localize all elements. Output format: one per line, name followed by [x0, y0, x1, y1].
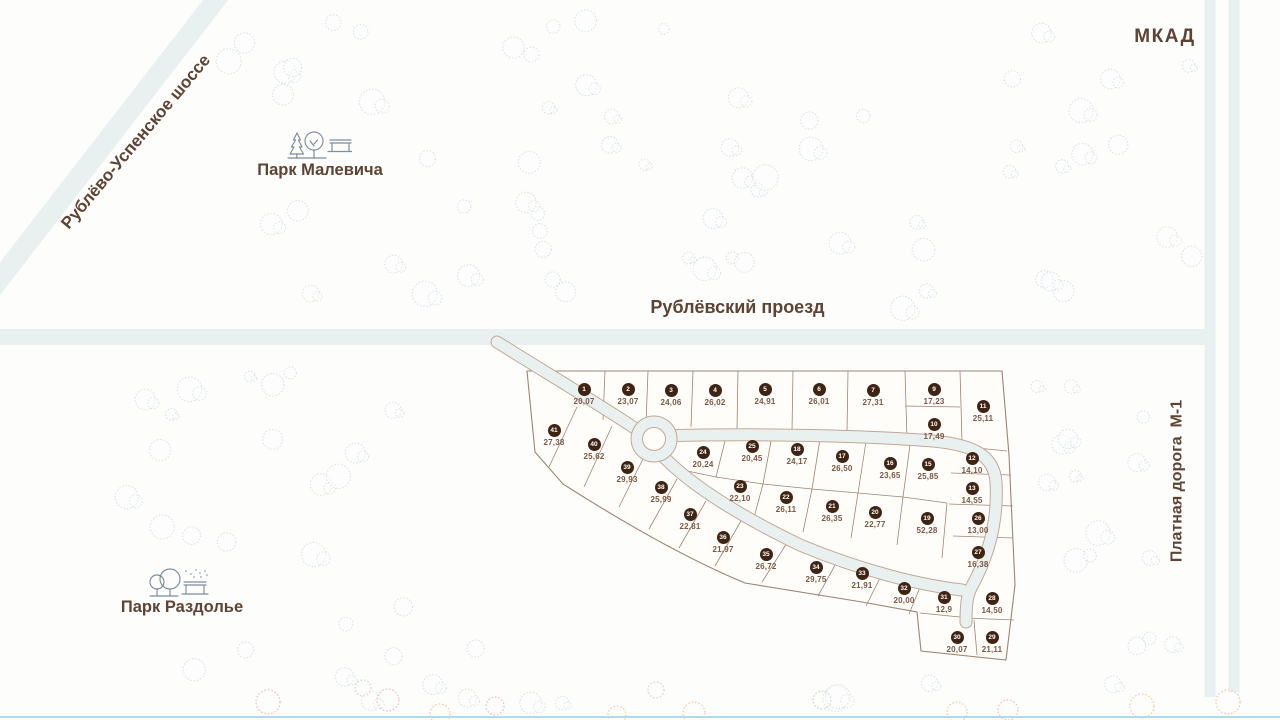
plot-area-label: 24,06 — [639, 398, 703, 407]
plot-marker: 4127,38 — [522, 424, 586, 447]
plot-badge[interactable]: 24 — [697, 446, 710, 459]
plot-marker: 2226,11 — [754, 491, 818, 514]
plot-marker: 2921,11 — [960, 631, 1024, 654]
plot-badge[interactable]: 6 — [813, 383, 826, 396]
plot-badge[interactable]: 10 — [928, 418, 941, 431]
plot-marker: 2716,38 — [946, 546, 1010, 569]
plot-area-label: 22,10 — [708, 494, 772, 503]
plot-badge[interactable]: 41 — [548, 424, 561, 437]
plot-badge[interactable]: 31 — [938, 591, 951, 604]
plot-badge[interactable]: 35 — [760, 548, 773, 561]
label-rublevsky-proezd: Рублёвский проезд — [590, 297, 885, 318]
plot-badge[interactable]: 23 — [734, 480, 747, 493]
plot-badge[interactable]: 26 — [972, 512, 985, 525]
plot-area-label: 29,75 — [784, 575, 848, 584]
plot-area-label: 20,24 — [671, 460, 735, 469]
plot-area-label: 14,55 — [940, 496, 1004, 505]
plot-marker: 727,31 — [841, 384, 905, 407]
plot-marker: 3020,07 — [925, 631, 989, 654]
plot-area-label: 20,07 — [925, 645, 989, 654]
masterplan-map: 120,07223,07324,06426,02524,91626,01727,… — [0, 0, 1280, 720]
label-park-razdolye: Парк Раздолье — [102, 598, 262, 617]
plot-marker: 3429,75 — [784, 561, 848, 584]
plot-area-label: 27,31 — [841, 398, 905, 407]
plot-marker: 1824,17 — [765, 443, 829, 466]
plot-badge[interactable]: 21 — [826, 500, 839, 513]
plot-area-label: 17,49 — [902, 432, 966, 441]
plot-badge[interactable]: 22 — [780, 491, 793, 504]
plot-badge[interactable]: 32 — [898, 582, 911, 595]
plot-badge[interactable]: 29 — [986, 631, 999, 644]
plot-area-label: 22,81 — [658, 522, 722, 531]
plot-marker: 3526,72 — [734, 548, 798, 571]
plot-marker: 3112,9 — [912, 591, 976, 614]
plot-area-label: 25,11 — [951, 414, 1015, 423]
plot-badge[interactable]: 15 — [922, 458, 935, 471]
plot-marker: 3321,91 — [830, 567, 894, 590]
plot-badge[interactable]: 33 — [856, 567, 869, 580]
plot-badge[interactable]: 36 — [717, 531, 730, 544]
plot-badge[interactable]: 30 — [951, 631, 964, 644]
plot-badge[interactable]: 39 — [621, 461, 634, 474]
plot-badge[interactable]: 13 — [966, 482, 979, 495]
plot-badge[interactable]: 7 — [867, 384, 880, 397]
plot-area-label: 25,62 — [562, 452, 626, 461]
plot-marker: 917,23 — [902, 383, 966, 406]
plot-marker: 1623,65 — [858, 457, 922, 480]
plot-marker: 4025,62 — [562, 438, 626, 461]
plot-area-label: 23,07 — [596, 397, 660, 406]
plot-area-label: 14,10 — [940, 466, 1004, 475]
plot-badge[interactable]: 28 — [986, 592, 999, 605]
plot-area-label: 27,38 — [522, 438, 586, 447]
plot-marker: 2126,35 — [800, 500, 864, 523]
plot-marker: 2520,45 — [720, 440, 784, 463]
plot-area-label: 26,35 — [800, 514, 864, 523]
plot-area-label: 26,50 — [810, 464, 874, 473]
plot-badge[interactable]: 3 — [665, 384, 678, 397]
plot-badge[interactable]: 9 — [928, 383, 941, 396]
plot-marker: 120,07 — [552, 383, 616, 406]
plot-area-label: 26,02 — [683, 398, 747, 407]
plot-area-label: 20,45 — [720, 454, 784, 463]
plot-area-label: 26,01 — [787, 397, 851, 406]
plot-badge[interactable]: 1 — [578, 383, 591, 396]
plot-badge[interactable]: 40 — [588, 438, 601, 451]
plot-marker: 1214,10 — [940, 452, 1004, 475]
plot-marker: 2613,00 — [946, 512, 1010, 535]
plot-marker: 2322,10 — [708, 480, 772, 503]
plot-marker: 626,01 — [787, 383, 851, 406]
plot-marker: 1952,28 — [895, 512, 959, 535]
plot-area-label: 25,85 — [896, 472, 960, 481]
plot-area-label: 20,00 — [872, 596, 936, 605]
plot-area-label: 14,50 — [960, 606, 1024, 615]
plot-badge[interactable]: 18 — [791, 443, 804, 456]
plot-area-label: 16,38 — [946, 560, 1010, 569]
plot-area-label: 26,72 — [734, 562, 798, 571]
plot-marker: 2022,77 — [843, 506, 907, 529]
plot-marker: 2420,24 — [671, 446, 735, 469]
plot-marker: 3220,00 — [872, 582, 936, 605]
plot-badge[interactable]: 2 — [622, 383, 635, 396]
plot-marker: 3825,99 — [629, 481, 693, 504]
plot-badge[interactable]: 38 — [655, 481, 668, 494]
plot-marker: 2814,50 — [960, 592, 1024, 615]
label-mkad: МКАД — [1120, 26, 1210, 48]
plot-marker: 324,06 — [639, 384, 703, 407]
plot-badge[interactable]: 12 — [966, 452, 979, 465]
plot-badge[interactable]: 5 — [759, 383, 772, 396]
plot-area-label: 13,00 — [946, 526, 1010, 535]
plot-marker: 1314,55 — [940, 482, 1004, 505]
park-razdolye-icon — [148, 567, 212, 599]
plot-badge[interactable]: 37 — [684, 508, 697, 521]
plot-area-label: 22,77 — [843, 520, 907, 529]
plot-marker: 3621,97 — [691, 531, 755, 554]
plot-marker: 426,02 — [683, 384, 747, 407]
plot-area-label: 20,07 — [552, 397, 616, 406]
plot-badge[interactable]: 34 — [810, 561, 823, 574]
plot-badge[interactable]: 4 — [709, 384, 722, 397]
plot-area-label: 24,17 — [765, 457, 829, 466]
plot-area-label: 17,23 — [902, 397, 966, 406]
plot-marker: 3929,93 — [595, 461, 659, 484]
bottom-edge-line — [0, 716, 1280, 718]
plot-area-label: 21,97 — [691, 545, 755, 554]
plot-badge[interactable]: 19 — [921, 512, 934, 525]
plot-area-label: 24,91 — [733, 397, 797, 406]
plot-area-label: 12,9 — [912, 605, 976, 614]
plot-badge[interactable]: 25 — [746, 440, 759, 453]
plot-marker: 1525,85 — [896, 458, 960, 481]
park-malevicha-icon — [286, 127, 352, 161]
plot-marker: 1017,49 — [902, 418, 966, 441]
plot-area-label: 29,93 — [595, 475, 659, 484]
plot-badge[interactable]: 20 — [869, 506, 882, 519]
plot-marker: 3722,81 — [658, 508, 722, 531]
plot-area-label: 25,99 — [629, 495, 693, 504]
plot-marker: 524,91 — [733, 383, 797, 406]
label-park-malevicha: Парк Малевича — [240, 161, 400, 180]
plot-marker: 223,07 — [596, 383, 660, 406]
label-platnaya-doroga-m1: Платная дорога М-1 — [1169, 379, 1187, 584]
plot-area-label: 26,11 — [754, 505, 818, 514]
plot-area-label: 21,11 — [960, 645, 1024, 654]
plot-area-label: 52,28 — [895, 526, 959, 535]
plot-badge[interactable]: 27 — [972, 546, 985, 559]
plot-marker: 1726,50 — [810, 450, 874, 473]
plot-area-label: 23,65 — [858, 471, 922, 480]
plot-marker: 1125,11 — [951, 400, 1015, 423]
plot-area-label: 21,91 — [830, 581, 894, 590]
plot-badge[interactable]: 16 — [884, 457, 897, 470]
plot-badge[interactable]: 17 — [836, 450, 849, 463]
plot-badge[interactable]: 11 — [977, 400, 990, 413]
